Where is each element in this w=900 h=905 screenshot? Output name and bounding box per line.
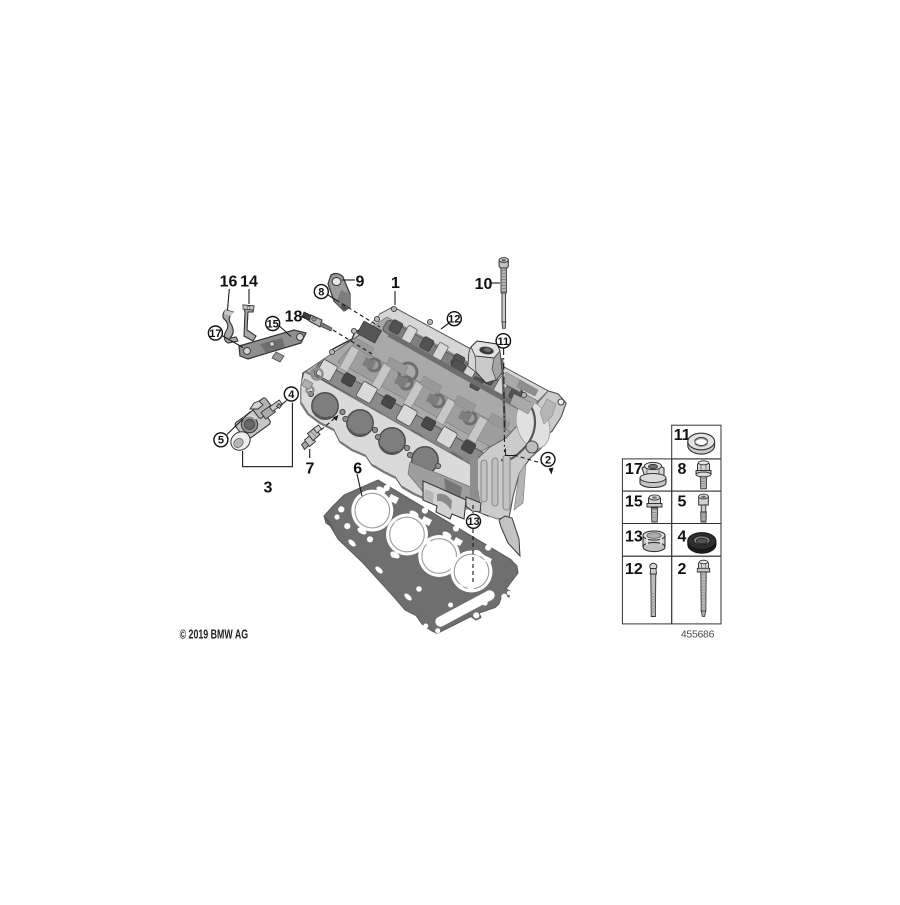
svg-text:7: 7 <box>306 460 315 477</box>
svg-text:2: 2 <box>545 454 551 466</box>
svg-text:13: 13 <box>467 516 479 528</box>
svg-text:© 2019 BMW AG: © 2019 BMW AG <box>180 627 249 642</box>
svg-text:1: 1 <box>391 275 400 292</box>
svg-text:14: 14 <box>240 274 258 291</box>
svg-text:12: 12 <box>448 314 460 326</box>
svg-text:9: 9 <box>356 274 365 291</box>
svg-text:3: 3 <box>264 480 273 497</box>
svg-text:15: 15 <box>625 494 643 511</box>
svg-text:16: 16 <box>220 274 238 291</box>
svg-text:8: 8 <box>678 461 687 478</box>
svg-text:4: 4 <box>288 389 295 401</box>
svg-text:2: 2 <box>678 561 687 578</box>
svg-text:5: 5 <box>678 494 687 511</box>
svg-text:13: 13 <box>625 529 643 546</box>
svg-text:8: 8 <box>318 287 324 299</box>
svg-text:6: 6 <box>353 460 362 477</box>
svg-text:17: 17 <box>209 328 221 340</box>
svg-text:18: 18 <box>285 308 303 325</box>
svg-text:5: 5 <box>218 435 224 447</box>
svg-text:17: 17 <box>625 461 643 478</box>
svg-text:455686: 455686 <box>681 629 715 641</box>
svg-text:15: 15 <box>267 318 279 330</box>
svg-text:11: 11 <box>497 336 509 348</box>
svg-text:12: 12 <box>625 561 643 578</box>
svg-text:10: 10 <box>475 276 493 293</box>
svg-text:4: 4 <box>678 529 687 546</box>
